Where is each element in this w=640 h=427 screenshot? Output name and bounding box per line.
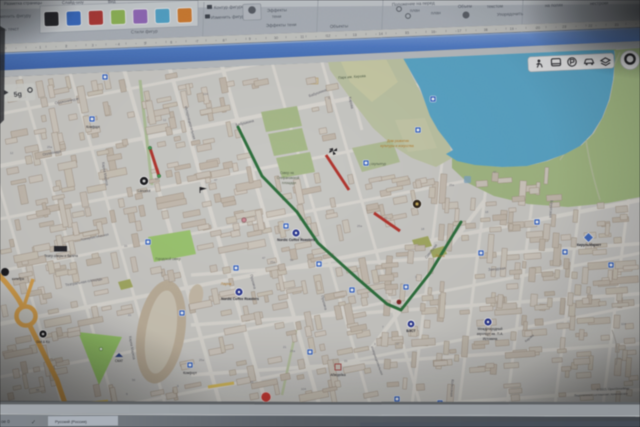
svg-text:✓: ✓	[31, 420, 36, 426]
svg-text:ое 0: ое 0	[1, 419, 10, 424]
svg-text:Русский (Россия): Русский (Россия)	[55, 419, 87, 424]
